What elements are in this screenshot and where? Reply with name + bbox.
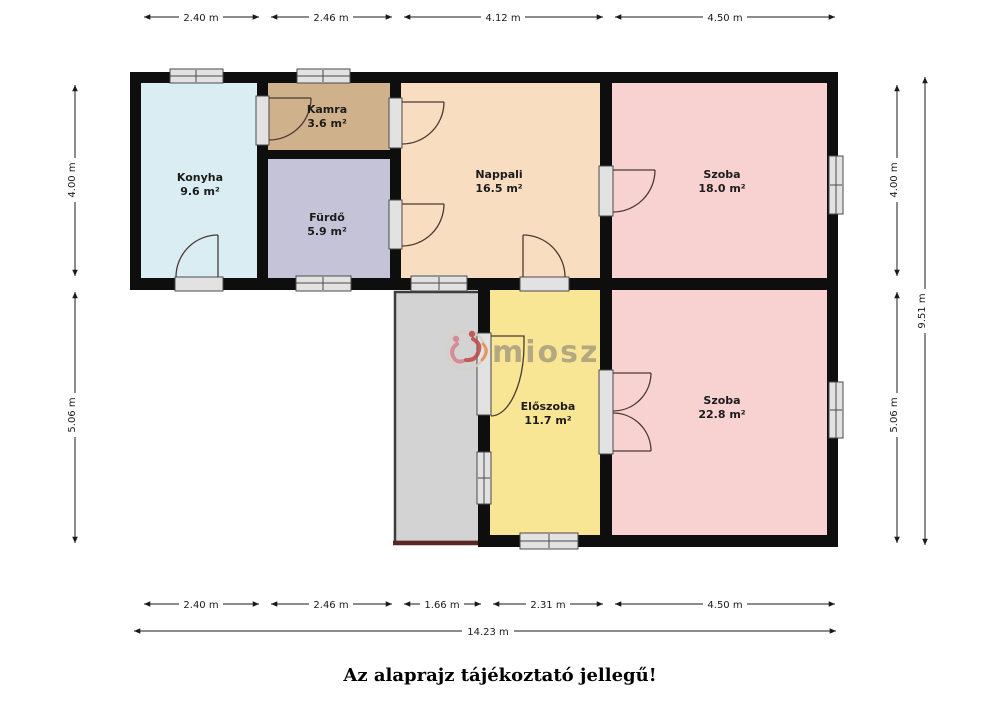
wall-top (130, 72, 838, 83)
dim-bottom-total: 14.23 m (134, 624, 836, 638)
wall-center-vertical (600, 83, 612, 535)
window-eloszoba-terrace (477, 452, 491, 504)
dim-bottom-total-label: 14.23 m (467, 627, 509, 638)
dim-bottom-2-label: 2.46 m (313, 600, 348, 611)
dim-left-1: 4.00 m (67, 85, 82, 276)
dim-top-2-label: 2.46 m (313, 13, 348, 24)
dim-bottom-3-label: 1.66 m (424, 600, 459, 611)
label-szoba2-name: Szoba (703, 394, 740, 407)
label-nappali-area: 16.5 m² (475, 182, 522, 195)
floor-plan-canvas: Konyha 9.6 m² Kamra 3.6 m² Fürdő 5.9 m² … (0, 0, 1000, 707)
wall-kamra-furdo (268, 150, 390, 159)
dim-right-total-label: 9.51 m (917, 293, 928, 328)
window-nappali-terrace (411, 276, 467, 291)
terrace (395, 292, 480, 542)
dim-right-total: 9.51 m (917, 77, 932, 545)
label-kamra-name: Kamra (307, 103, 347, 116)
dim-left-2: 5.06 m (67, 292, 82, 543)
dim-top-1-label: 2.40 m (183, 13, 218, 24)
window-szoba2-right (829, 382, 843, 438)
dim-bottom-4: 2.31 m (493, 597, 603, 611)
dim-bottom-2: 2.46 m (271, 597, 392, 611)
dim-left-1-label: 4.00 m (67, 162, 78, 197)
dim-bottom-1-label: 2.40 m (183, 600, 218, 611)
label-konyha-name: Konyha (177, 171, 223, 184)
dim-top-2: 2.46 m (271, 10, 392, 24)
label-konyha-area: 9.6 m² (180, 185, 220, 198)
label-kamra-area: 3.6 m² (307, 117, 347, 130)
label-szoba1-area: 18.0 m² (698, 182, 745, 195)
watermark-brand-text: miosz (492, 335, 599, 370)
label-furdo-area: 5.9 m² (307, 225, 347, 238)
dim-top-4: 4.50 m (615, 10, 835, 24)
dim-right-1: 4.00 m (889, 85, 904, 276)
dim-bottom-5: 4.50 m (615, 597, 835, 611)
dim-bottom-4-label: 2.31 m (530, 600, 565, 611)
dim-top-3: 4.12 m (404, 10, 603, 24)
wall-right (827, 72, 838, 547)
dim-right-2: 5.06 m (889, 292, 904, 543)
entrance-eloszoba-bottom (520, 533, 578, 549)
label-szoba2-area: 22.8 m² (698, 408, 745, 421)
wall-left (130, 72, 141, 290)
dim-right-2-label: 5.06 m (889, 397, 900, 432)
caption-note: Az alaprajz tájékoztató jellegű! (342, 665, 656, 686)
dim-top-3-label: 4.12 m (485, 13, 520, 24)
dim-top-1: 2.40 m (144, 10, 259, 24)
dim-bottom-5-label: 4.50 m (707, 600, 742, 611)
dim-bottom-1: 2.40 m (144, 597, 259, 611)
label-eloszoba-area: 11.7 m² (524, 414, 571, 427)
window-furdo-bottom (296, 276, 351, 291)
wall-middle-horizontal (130, 278, 838, 290)
label-szoba1-name: Szoba (703, 168, 740, 181)
dim-bottom-3: 1.66 m (404, 597, 481, 611)
dim-top-4-label: 4.50 m (707, 13, 742, 24)
window-kamra-top (297, 69, 350, 83)
window-szoba1-right (829, 156, 843, 214)
dim-right-1-label: 4.00 m (889, 162, 900, 197)
dim-left-2-label: 5.06 m (67, 397, 78, 432)
window-konyha-top (170, 69, 223, 83)
label-nappali-name: Nappali (475, 168, 522, 181)
label-eloszoba-name: Előszoba (521, 400, 576, 413)
label-furdo-name: Fürdő (309, 211, 345, 224)
